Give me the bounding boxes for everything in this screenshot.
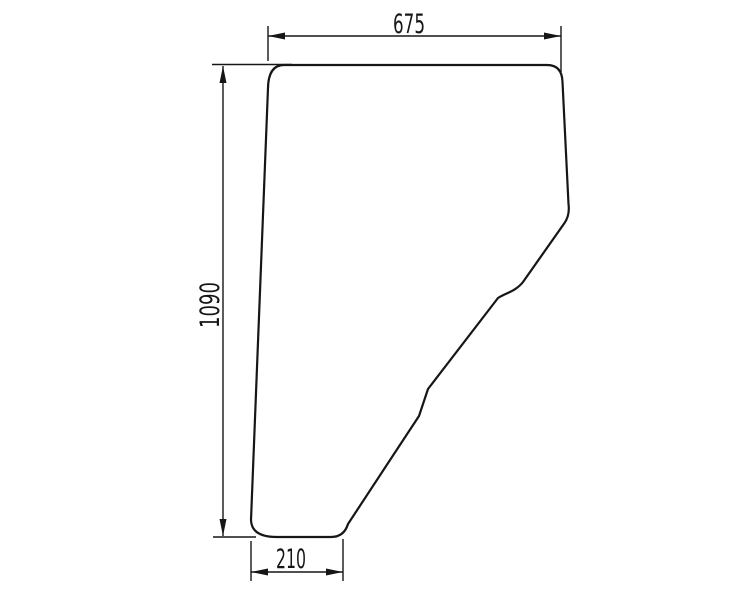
dimension-top-width: 675 xyxy=(268,9,561,72)
arrowhead-left-icon xyxy=(251,569,268,576)
dimension-label-bottom: 210 xyxy=(276,544,306,575)
arrowhead-left-icon xyxy=(268,33,285,40)
arrowhead-right-icon xyxy=(326,569,343,576)
arrowhead-down-icon xyxy=(220,519,227,536)
dimension-label-top: 675 xyxy=(393,9,425,40)
dimension-bottom-width: 210 xyxy=(251,539,343,581)
dimension-drawing: 675 1090 210 xyxy=(0,0,750,600)
arrowhead-up-icon xyxy=(220,66,227,83)
arrowhead-right-icon xyxy=(544,33,561,40)
technical-drawing-canvas: 675 1090 210 xyxy=(0,0,750,600)
glass-panel-outline xyxy=(251,65,569,537)
dimension-left-height: 1090 xyxy=(195,65,292,538)
dimension-label-left: 1090 xyxy=(195,282,226,328)
